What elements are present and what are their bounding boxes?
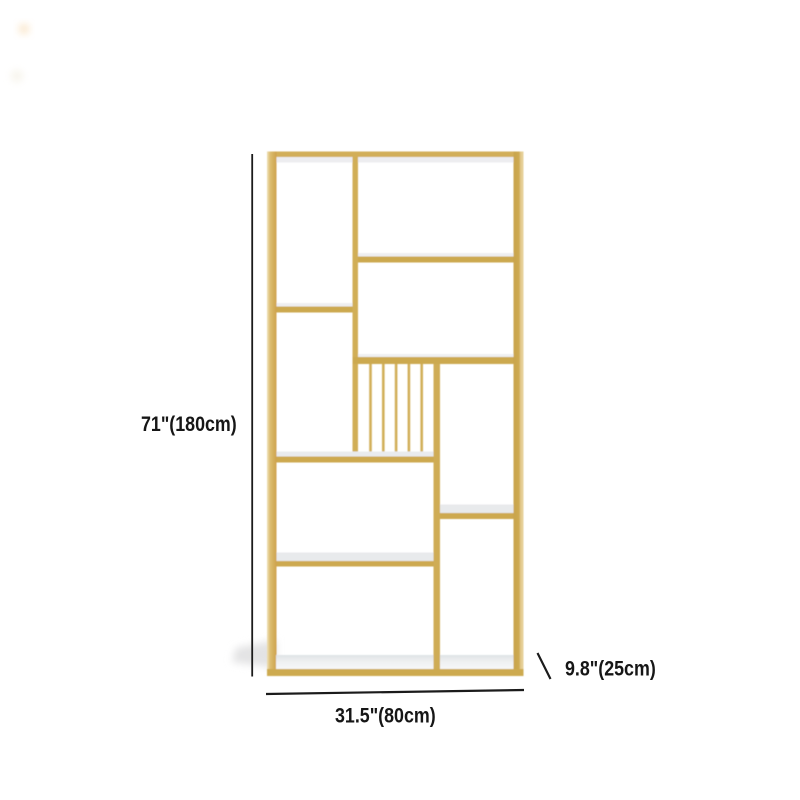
svg-text:9.8"(25cm): 9.8"(25cm) (565, 657, 656, 681)
svg-text:71"(180cm): 71"(180cm) (141, 413, 237, 437)
svg-text:31.5"(80cm): 31.5"(80cm) (335, 704, 436, 728)
